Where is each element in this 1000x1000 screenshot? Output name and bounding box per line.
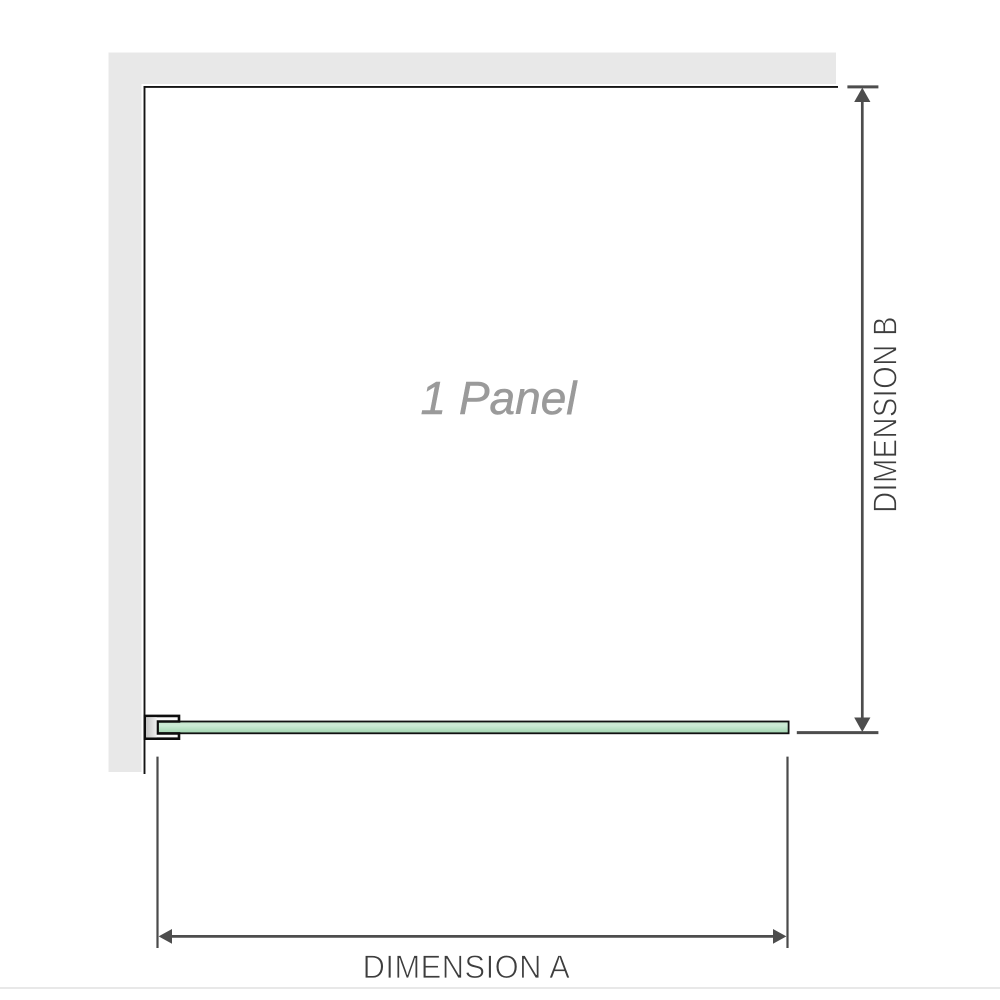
- svg-text:1 Panel: 1 Panel: [421, 372, 579, 424]
- svg-text:DIMENSION A: DIMENSION A: [363, 949, 571, 985]
- svg-text:DIMENSION B: DIMENSION B: [867, 316, 904, 513]
